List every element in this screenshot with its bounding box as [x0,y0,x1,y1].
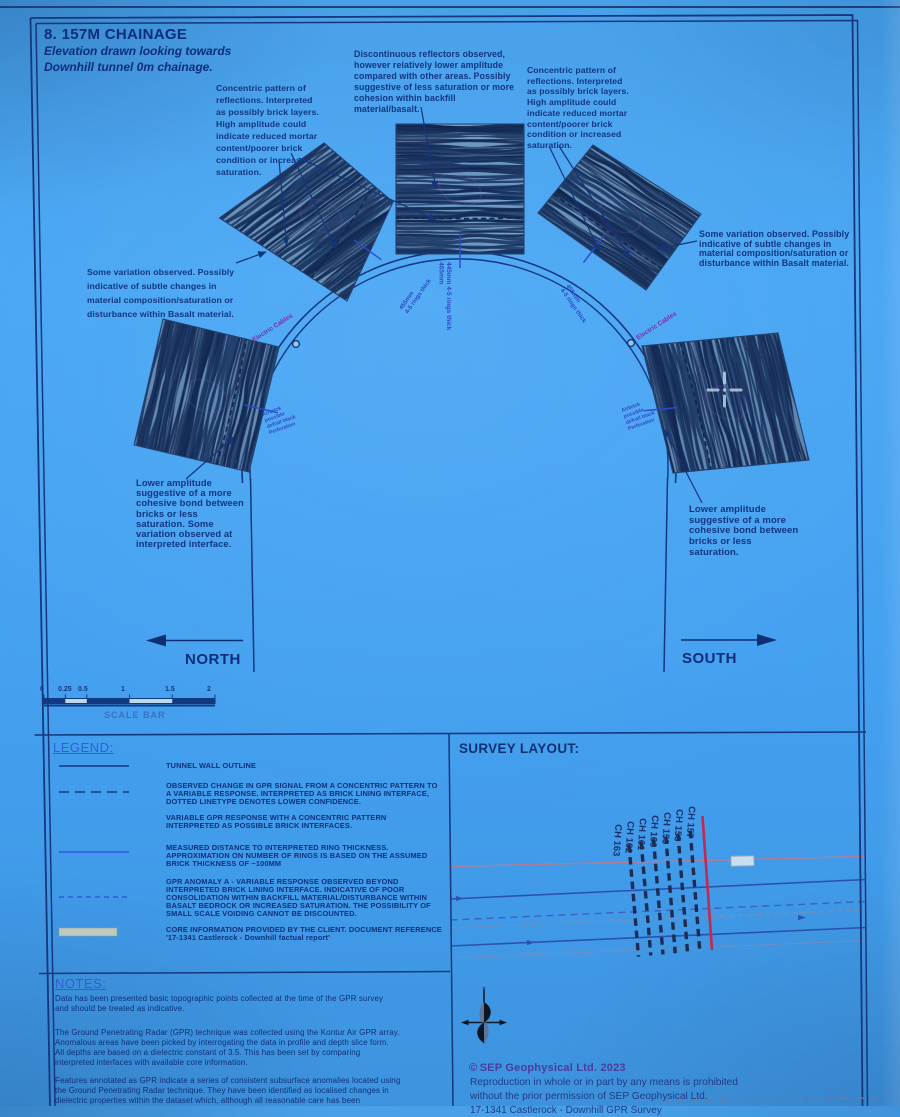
svg-text:CH 163: CH 163 [610,824,623,857]
svg-text:Electric Cables: Electric Cables [251,312,294,343]
svg-text:465mm: 465mm [438,262,445,285]
svg-text:445mm 4-5 rings thick: 445mm 4-5 rings thick [445,262,452,331]
svg-text:Electric Cables: Electric Cables [635,310,678,341]
